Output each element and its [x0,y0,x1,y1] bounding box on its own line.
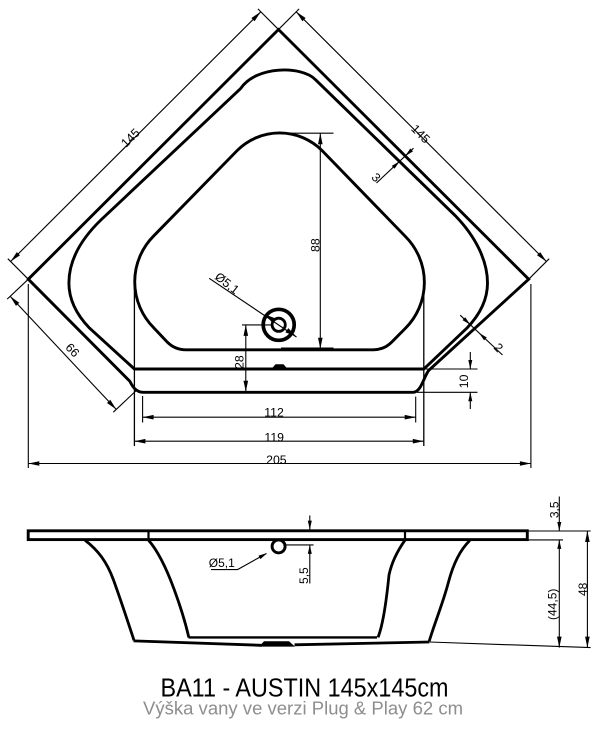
svg-text:66: 66 [63,340,83,360]
svg-text:10: 10 [457,374,471,388]
svg-text:Ø5,1: Ø5,1 [212,270,242,298]
svg-text:2: 2 [491,340,506,355]
svg-text:145: 145 [408,122,433,147]
svg-text:145: 145 [118,126,143,151]
svg-text:(44,5): (44,5) [546,589,560,620]
svg-text:Výška vany ve verzi Plug & Pla: Výška vany ve verzi Plug & Play 62 cm [143,699,463,719]
svg-text:Ø5,1: Ø5,1 [209,556,235,570]
svg-text:205: 205 [266,453,287,467]
svg-text:48: 48 [576,582,590,596]
svg-text:88: 88 [309,238,323,252]
svg-text:112: 112 [264,405,284,419]
svg-text:5,5: 5,5 [297,567,311,584]
svg-text:119: 119 [264,431,284,445]
svg-text:3: 3 [369,170,384,185]
svg-text:3,5: 3,5 [548,501,562,518]
svg-text:28: 28 [233,355,247,369]
